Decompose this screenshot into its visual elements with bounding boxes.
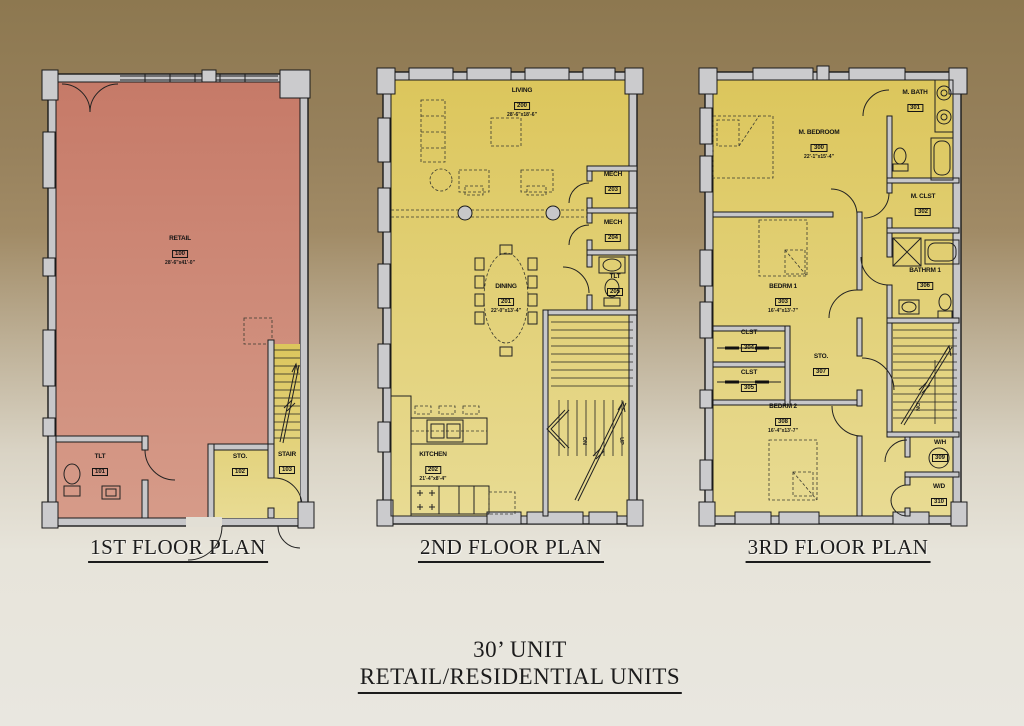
stair-dn-text: DN	[914, 403, 920, 411]
room-label-bedrm-1: BEDRM 1 303 16'-4"x13'-7"	[768, 284, 798, 314]
room-label-retail: RETAIL 100 28'-6"x41'-0"	[165, 236, 195, 266]
room-label-dining: DINING 201 22'-0"x13'-4"	[491, 284, 521, 314]
room-label-mech-203: MECH 203	[604, 172, 622, 196]
room-label-kitchen: KITCHEN 202 21'-4"x8'-4"	[419, 452, 447, 482]
room-label-m-clst: M. CLST 302	[911, 194, 936, 218]
sheet-title: 30’ UNIT RETAIL/RESIDENTIAL UNITS	[358, 637, 682, 694]
room-label-m-bath: M. BATH 301	[902, 90, 927, 114]
plan-title-second-floor: 2ND FLOOR PLAN	[418, 535, 604, 563]
sheet-title-type: RETAIL/RESIDENTIAL UNITS	[358, 664, 682, 694]
third-floor-plan: M. BEDROOM 300 22'-1"x15'-4" M. BATH 301…	[697, 60, 969, 560]
stair-dn-text: DN	[581, 437, 587, 445]
plan-title-third-floor: 3RD FLOOR PLAN	[746, 535, 931, 563]
room-label-sto-102: STO. 102	[232, 454, 248, 478]
second-floor-plan: LIVING 200 28'-6"x18'-6" DINING 201 22'-…	[375, 60, 645, 560]
room-label-bathrm-1: BATHRM 1 306	[909, 268, 941, 292]
sheet-title-unit: 30’ UNIT	[358, 637, 682, 663]
room-label-mech-204: MECH 204	[604, 220, 622, 244]
room-label-tlt-205: TLT 205	[607, 274, 623, 298]
first-floor-drawing	[40, 62, 316, 562]
room-label-tlt-101: TLT 101	[92, 454, 108, 478]
room-label-stair-103: STAIR 103	[278, 452, 296, 476]
room-label-sto-307: STO. 307	[813, 354, 829, 378]
room-label-wd-310: W/D 310	[931, 484, 947, 508]
room-label-wh-309: W/H 309	[932, 440, 948, 464]
room-label-m-bedroom: M. BEDROOM 300 22'-1"x15'-4"	[799, 130, 840, 160]
room-label-living: LIVING 200 28'-6"x18'-6"	[507, 88, 537, 118]
room-label-clst-305: CLST 305	[741, 370, 757, 394]
room-label-bedrm-2: BEDRM 2 308 16'-4"x13'-7"	[768, 404, 798, 434]
stair-up-text: UP	[618, 437, 624, 445]
plan-title-first-floor: 1ST FLOOR PLAN	[88, 535, 268, 563]
room-label-clst-304: CLST 304	[741, 330, 757, 354]
first-floor-plan: RETAIL 100 28'-6"x41'-0" TLT 101 STO. 10…	[40, 62, 316, 562]
